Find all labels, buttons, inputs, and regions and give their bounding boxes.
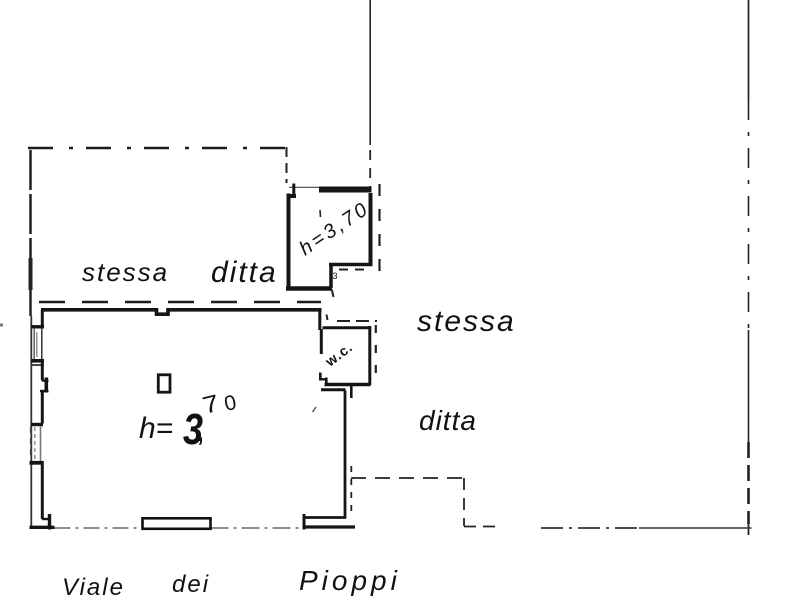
svg-text:ditta: ditta	[211, 256, 278, 289]
svg-text:h=: h=	[139, 412, 173, 445]
svg-text:Pioppi: Pioppi	[299, 565, 401, 596]
svg-text:3: 3	[333, 271, 338, 281]
svg-text:,: ,	[197, 420, 204, 447]
svg-text:dei: dei	[172, 571, 210, 598]
svg-text:Viale: Viale	[62, 574, 125, 600]
svg-text:stessa: stessa	[82, 257, 169, 287]
svg-text:ditta: ditta	[419, 405, 477, 436]
svg-text:stessa: stessa	[417, 305, 516, 338]
